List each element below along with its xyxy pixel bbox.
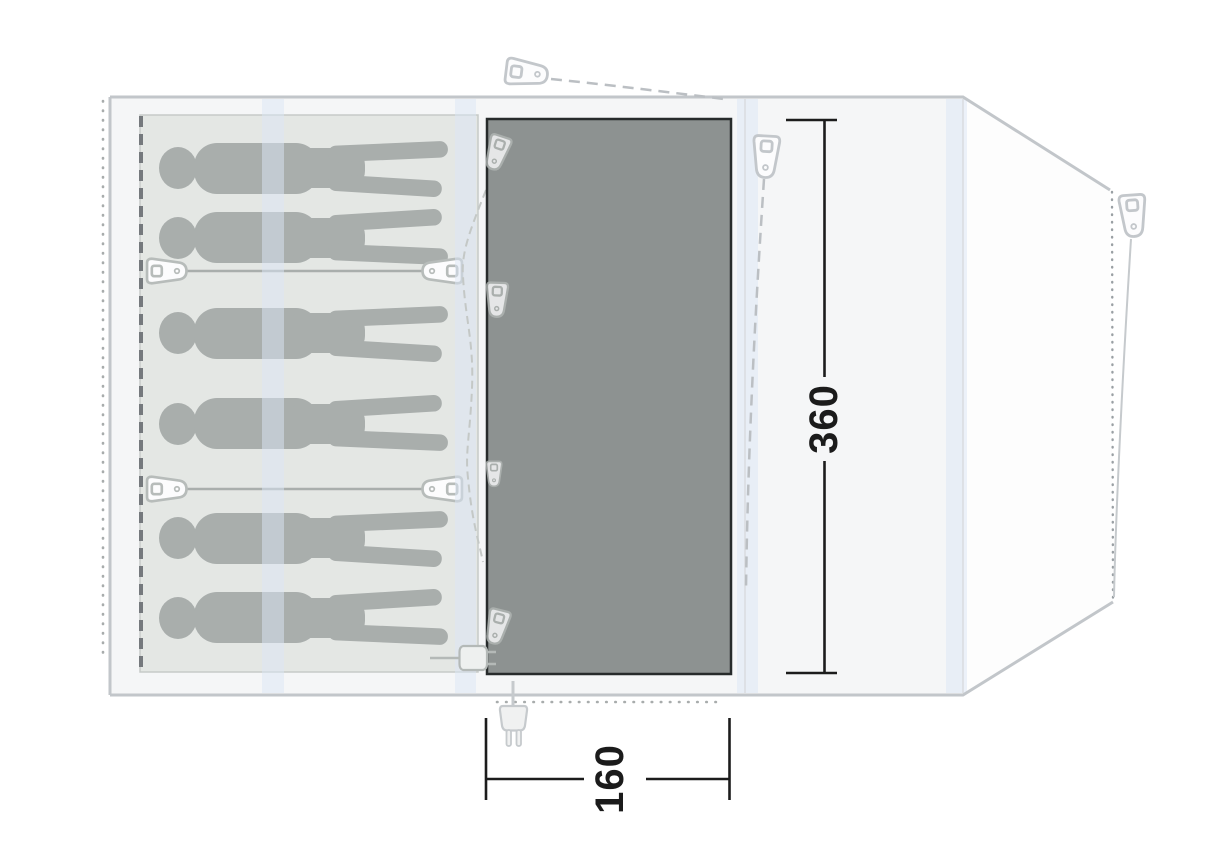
groundsheet (487, 119, 731, 674)
pole-stripe (455, 99, 476, 693)
front-porch-area (963, 97, 1113, 695)
pole-stripe (946, 99, 967, 693)
depth-dimension-label: 360 (802, 359, 846, 479)
strap-buckle-icon (147, 259, 186, 283)
tent-peg-icon (1119, 194, 1148, 237)
pole-stripe (262, 99, 284, 693)
zipper-pull-icon (486, 461, 501, 486)
strap-buckle-icon (147, 477, 186, 501)
tent-peg-icon (505, 58, 549, 89)
guy-line (1114, 239, 1131, 597)
sleeping-cabin (140, 115, 478, 672)
pole-stripe (737, 99, 758, 693)
entrance-dimension-label: 160 (588, 719, 632, 839)
tent-floorplan: 360 160 (0, 0, 1230, 862)
